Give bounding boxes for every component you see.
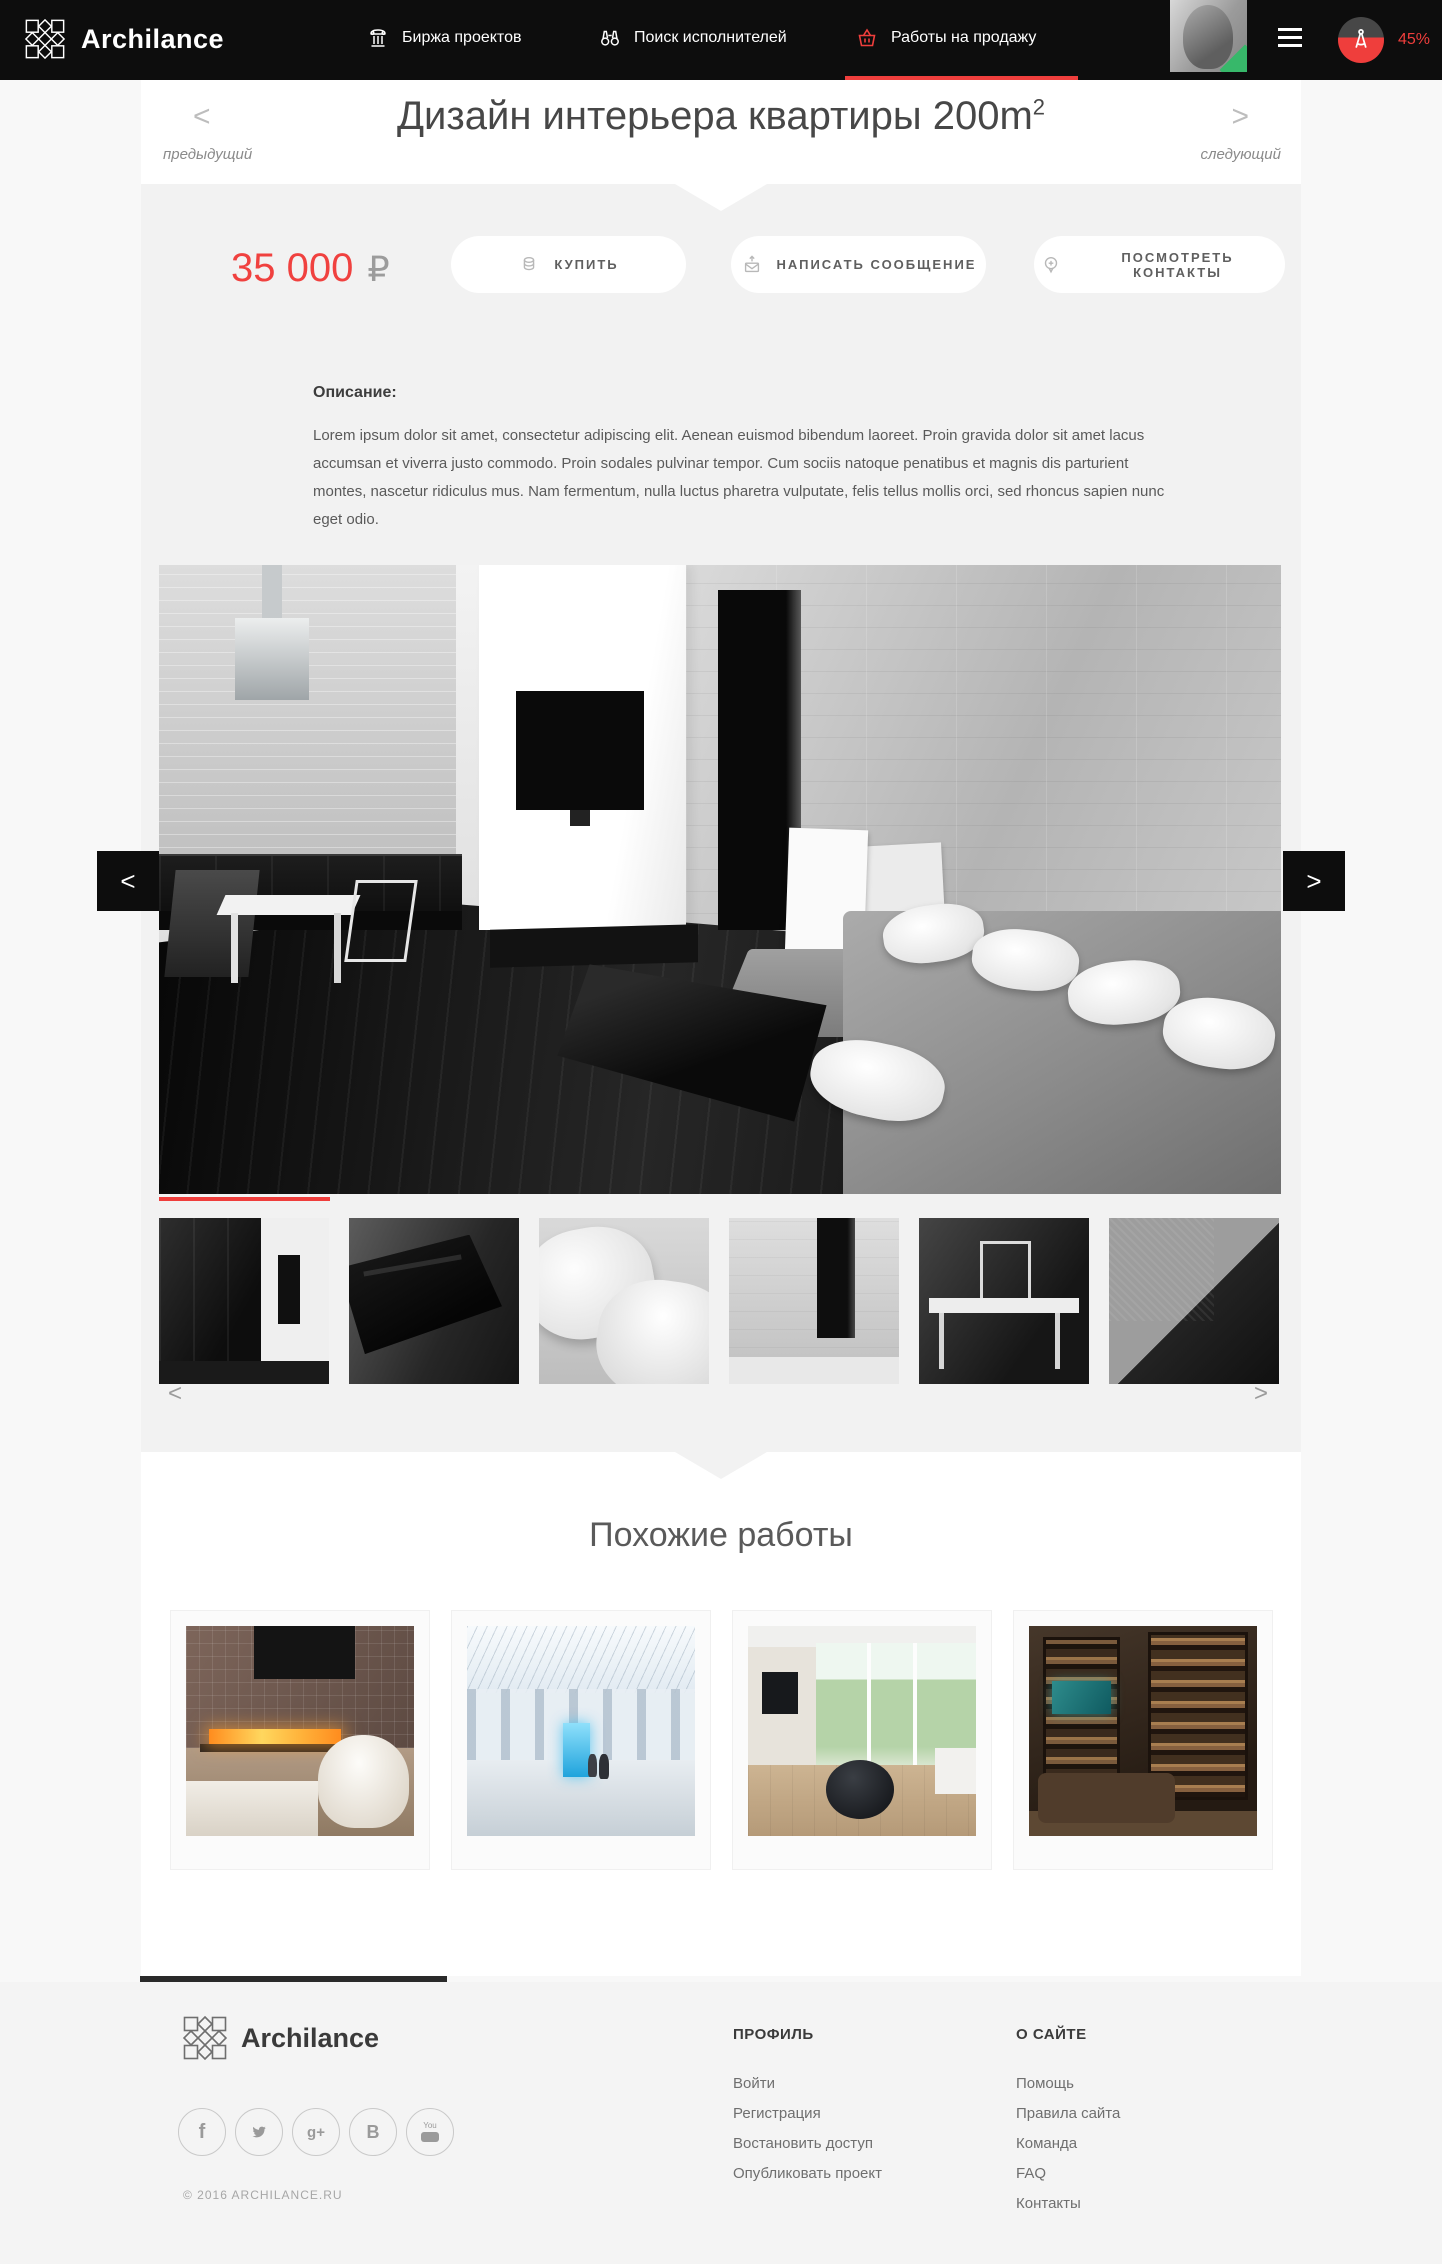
map-pin-icon bbox=[1040, 254, 1062, 276]
content-card: < предыдущий Дизайн интерьера квартиры 2… bbox=[141, 80, 1301, 1976]
gallery-thumb-3[interactable] bbox=[539, 1218, 709, 1384]
photo-layer bbox=[935, 1748, 976, 1794]
photo-layer bbox=[599, 1754, 609, 1779]
footer-column-profile: ПРОФИЛЬ Войти Регистрация Востановить до… bbox=[733, 2026, 882, 2189]
footer-link-team[interactable]: Команда bbox=[1016, 2129, 1120, 2159]
gallery-thumb-5[interactable] bbox=[919, 1218, 1089, 1384]
coins-icon bbox=[518, 254, 540, 276]
twitter-icon[interactable] bbox=[235, 2108, 283, 2156]
vk-glyph: B bbox=[367, 2122, 380, 2143]
gallery-next-button[interactable]: > bbox=[1283, 851, 1345, 911]
photo-layer bbox=[762, 1672, 798, 1714]
description-label: Описание: bbox=[313, 384, 397, 402]
youtube-icon[interactable]: You bbox=[406, 2108, 454, 2156]
photo-layer bbox=[1043, 1637, 1121, 1792]
nav-label: Биржа проектов bbox=[402, 29, 521, 47]
photo-layer bbox=[729, 1357, 899, 1384]
write-message-label: НАПИСАТЬ СООБЩЕНИЕ bbox=[777, 257, 977, 272]
similar-work-card-3[interactable] bbox=[732, 1610, 992, 1870]
thumbs-next-button[interactable]: > bbox=[1254, 1382, 1268, 1406]
footer-logo[interactable]: Archilance bbox=[183, 2016, 379, 2060]
prev-work-label[interactable]: предыдущий bbox=[163, 146, 252, 163]
footer-link-register[interactable]: Регистрация bbox=[733, 2099, 882, 2129]
photo-layer bbox=[588, 1754, 597, 1777]
photo-layer bbox=[1109, 1218, 1214, 1321]
similar-work-card-1[interactable] bbox=[170, 1610, 430, 1870]
photo-layer bbox=[467, 1626, 695, 1693]
avatar[interactable] bbox=[1170, 0, 1247, 72]
gallery-progress-bar bbox=[159, 1197, 330, 1201]
gallery-thumb-2[interactable] bbox=[349, 1218, 519, 1384]
nav-label: Поиск исполнителей bbox=[634, 29, 787, 47]
price-value: 35 000 bbox=[231, 246, 353, 291]
page-title-sup: 2 bbox=[1033, 95, 1045, 120]
avatar-photo bbox=[1183, 5, 1233, 69]
similar-work-card-2[interactable] bbox=[451, 1610, 711, 1870]
similar-works-title: Похожие работы bbox=[141, 1516, 1301, 1555]
social-links: f g+ B You bbox=[178, 2108, 454, 2156]
work-details-band: 35 000 ₽ КУПИТЬ НАПИСАТЬ СООБЩЕНИЕ bbox=[141, 184, 1301, 1452]
nav-item-search-performers[interactable]: Поиск исполнителей bbox=[598, 0, 787, 76]
nav-item-projects[interactable]: Биржа проектов bbox=[366, 0, 521, 76]
photo-layer bbox=[349, 1235, 502, 1355]
photo-layer bbox=[867, 1643, 872, 1765]
gallery-thumb-1[interactable] bbox=[159, 1218, 329, 1384]
photo-tv bbox=[516, 691, 644, 811]
facebook-icon[interactable]: f bbox=[178, 2108, 226, 2156]
basket-icon bbox=[855, 26, 879, 50]
photo-layer bbox=[1038, 1773, 1175, 1823]
copyright: © 2016 ARCHILANCE.RU bbox=[183, 2188, 343, 2202]
footer-link-publish-project[interactable]: Опубликовать проект bbox=[733, 2159, 882, 2189]
bank-icon bbox=[366, 26, 390, 50]
page: Archilance Биржа проектов Поиск исполнит… bbox=[0, 0, 1442, 2264]
photo-layer bbox=[563, 1723, 590, 1778]
photo-layer bbox=[209, 1729, 341, 1744]
photo-layer bbox=[1052, 1681, 1111, 1715]
view-contacts-label: ПОСМОТРЕТЬ КОНТАКТЫ bbox=[1076, 250, 1279, 280]
photo-hood-stack bbox=[262, 565, 282, 622]
vk-icon[interactable]: B bbox=[349, 2108, 397, 2156]
photo-layer bbox=[318, 1735, 409, 1827]
envelope-icon bbox=[741, 254, 763, 276]
photo-layer bbox=[817, 1218, 854, 1338]
photo-layer bbox=[186, 1781, 318, 1836]
menu-icon[interactable] bbox=[1278, 28, 1302, 52]
similar-work-card-4[interactable] bbox=[1013, 1610, 1273, 1870]
description-text: Lorem ipsum dolor sit amet, consectetur … bbox=[313, 422, 1181, 534]
nav-label: Работы на продажу bbox=[891, 29, 1036, 47]
footer-link-login[interactable]: Войти bbox=[733, 2069, 882, 2099]
main-photo[interactable] bbox=[159, 565, 1281, 1194]
footer-link-restore-access[interactable]: Востановить доступ bbox=[733, 2129, 882, 2159]
photo-layer bbox=[159, 1361, 329, 1384]
google-plus-icon[interactable]: g+ bbox=[292, 2108, 340, 2156]
photo-layer bbox=[159, 1218, 261, 1384]
notch-top bbox=[675, 184, 767, 211]
buy-button[interactable]: КУПИТЬ bbox=[451, 236, 686, 293]
next-work-label[interactable]: следующий bbox=[1201, 146, 1282, 163]
price: 35 000 ₽ bbox=[231, 246, 390, 291]
logo-text: Archilance bbox=[81, 24, 224, 55]
view-contacts-button[interactable]: ПОСМОТРЕТЬ КОНТАКТЫ bbox=[1034, 236, 1285, 293]
write-message-button[interactable]: НАПИСАТЬ СООБЩЕНИЕ bbox=[731, 236, 986, 293]
photo-layer bbox=[980, 1241, 1031, 1301]
footer: Archilance f g+ B You © 2016 ARCHILANCE.… bbox=[0, 1982, 1442, 2264]
similar-work-photo bbox=[186, 1626, 414, 1836]
photo-dining-table bbox=[216, 895, 360, 915]
footer-column-title: ПРОФИЛЬ bbox=[733, 2026, 882, 2043]
archilance-logo-icon bbox=[25, 19, 65, 59]
header: Archilance Биржа проектов Поиск исполнит… bbox=[0, 0, 1442, 80]
photo-layer bbox=[929, 1298, 1079, 1313]
similar-work-photo bbox=[748, 1626, 976, 1836]
ruble-sign: ₽ bbox=[367, 250, 389, 290]
active-nav-underline bbox=[845, 76, 1078, 80]
twitter-bird-icon bbox=[249, 2122, 269, 2142]
header-logo[interactable]: Archilance bbox=[25, 19, 224, 59]
footer-column-about: О САЙТЕ Помощь Правила сайта Команда FAQ… bbox=[1016, 2026, 1120, 2219]
page-title-text: Дизайн интерьера квартиры 200m bbox=[397, 94, 1033, 138]
footer-link-contacts[interactable]: Контакты bbox=[1016, 2189, 1120, 2219]
page-title: Дизайн интерьера квартиры 200m2 bbox=[141, 94, 1301, 139]
footer-link-rules[interactable]: Правила сайта bbox=[1016, 2099, 1120, 2129]
gallery-thumb-6[interactable] bbox=[1109, 1218, 1279, 1384]
notch-bottom bbox=[675, 1452, 767, 1479]
similar-works-section: Похожие работы bbox=[141, 1452, 1301, 1976]
photo-dining-chair bbox=[165, 870, 260, 977]
photo-backsplash bbox=[159, 565, 456, 861]
gallery-prev-button[interactable]: < bbox=[97, 851, 159, 911]
next-work-arrow[interactable]: > bbox=[1231, 102, 1249, 132]
photo-layer bbox=[254, 1626, 354, 1679]
similar-work-photo bbox=[467, 1626, 695, 1836]
photo-vent-hood bbox=[235, 618, 309, 700]
profile-progress-value: 45% bbox=[1398, 31, 1430, 49]
footer-logo-text: Archilance bbox=[241, 2023, 379, 2054]
footer-accent-bar bbox=[140, 1976, 447, 1982]
youtube-box bbox=[421, 2132, 439, 2142]
photo-layer bbox=[278, 1255, 300, 1325]
profile-progress-badge[interactable] bbox=[1338, 17, 1384, 63]
photo-media-bench bbox=[490, 924, 698, 967]
youtube-word: You bbox=[423, 2122, 437, 2130]
buy-button-label: КУПИТЬ bbox=[554, 257, 618, 272]
photo-layer bbox=[826, 1760, 894, 1819]
compass-icon bbox=[1348, 27, 1374, 53]
footer-link-faq[interactable]: FAQ bbox=[1016, 2159, 1120, 2189]
footer-link-help[interactable]: Помощь bbox=[1016, 2069, 1120, 2099]
google-plus-glyph: g+ bbox=[307, 2124, 325, 2141]
photo-table-leg bbox=[334, 913, 341, 982]
photo-table-leg bbox=[231, 913, 238, 982]
facebook-glyph: f bbox=[199, 2121, 206, 2144]
footer-column-title: О САЙТЕ bbox=[1016, 2026, 1120, 2043]
photo-tv-stand bbox=[570, 810, 590, 826]
gallery-thumb-4[interactable] bbox=[729, 1218, 899, 1384]
photo-white-chair bbox=[344, 880, 417, 962]
archilance-logo-icon bbox=[183, 2016, 227, 2060]
photo-layer bbox=[939, 1313, 943, 1369]
binoculars-icon bbox=[598, 26, 622, 50]
thumbs-prev-button[interactable]: < bbox=[168, 1382, 182, 1406]
nav-item-works-for-sale[interactable]: Работы на продажу bbox=[855, 0, 1036, 76]
similar-work-photo bbox=[1029, 1626, 1257, 1836]
photo-layer bbox=[816, 1643, 976, 1765]
